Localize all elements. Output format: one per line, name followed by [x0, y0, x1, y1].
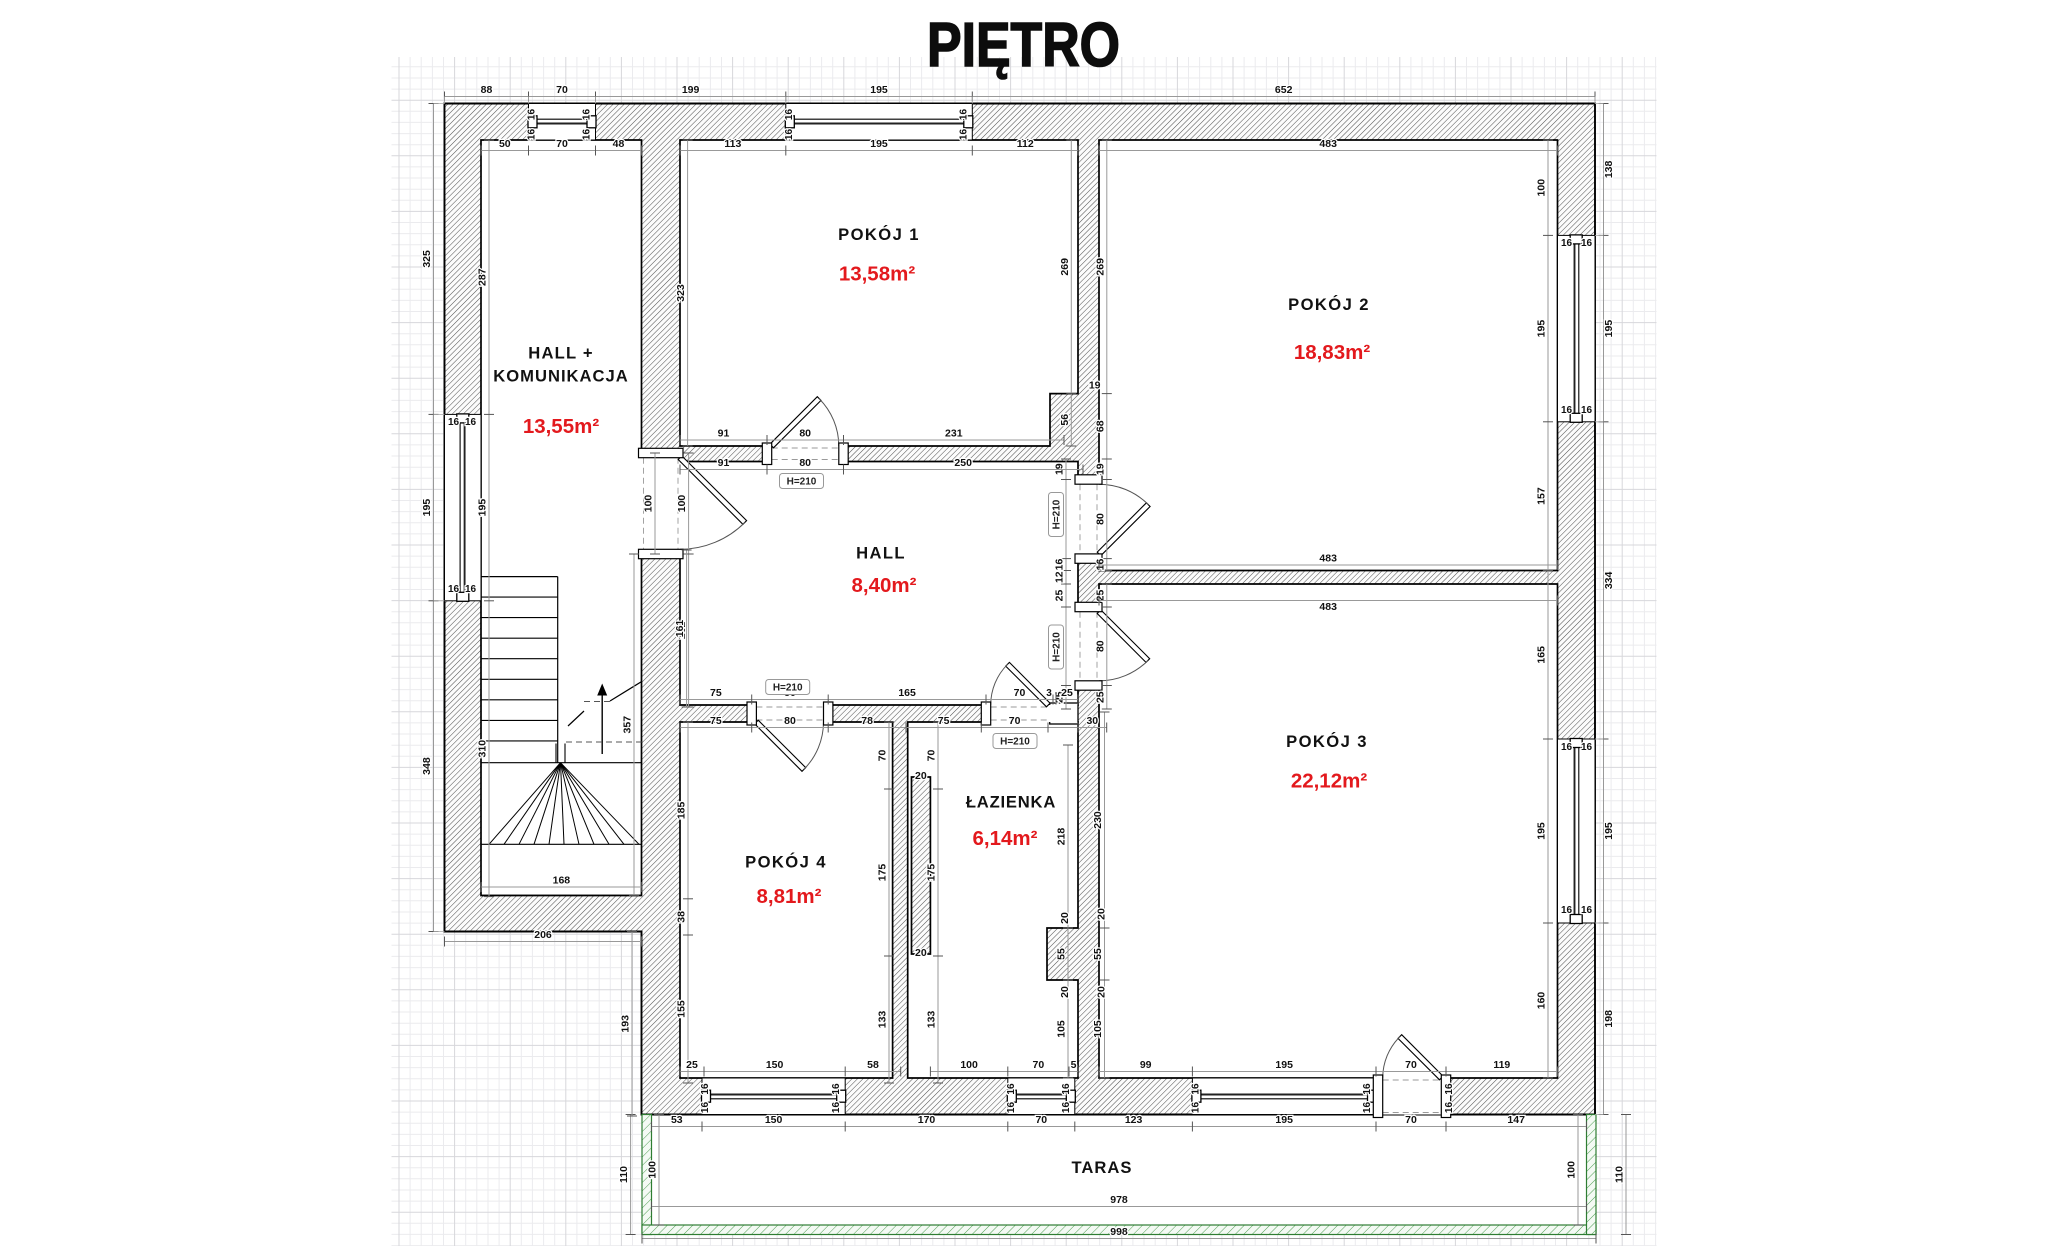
svg-text:16: 16	[582, 109, 593, 121]
svg-text:H=210: H=210	[1052, 632, 1063, 662]
svg-text:269: 269	[1059, 258, 1071, 276]
svg-text:195: 195	[477, 499, 489, 517]
svg-text:133: 133	[926, 1011, 938, 1029]
svg-text:165: 165	[898, 687, 916, 699]
svg-text:68: 68	[1094, 420, 1106, 432]
svg-text:978: 978	[1110, 1194, 1128, 1206]
svg-text:195: 195	[1275, 1114, 1293, 1126]
svg-text:483: 483	[1319, 553, 1337, 565]
svg-text:16: 16	[448, 417, 460, 428]
svg-text:58: 58	[867, 1059, 879, 1071]
svg-text:22,12m²: 22,12m²	[1291, 770, 1368, 793]
svg-text:70: 70	[926, 750, 938, 762]
svg-text:48: 48	[613, 138, 625, 150]
svg-text:16: 16	[700, 1102, 711, 1114]
svg-text:231: 231	[945, 428, 963, 440]
svg-text:POKÓJ 2: POKÓJ 2	[1288, 295, 1370, 314]
svg-text:218: 218	[1056, 828, 1068, 846]
svg-text:175: 175	[926, 864, 938, 882]
svg-text:157: 157	[1536, 487, 1548, 505]
svg-text:16: 16	[1061, 1102, 1072, 1114]
svg-text:325: 325	[421, 250, 433, 268]
svg-text:50: 50	[499, 138, 511, 150]
svg-text:99: 99	[1140, 1059, 1152, 1071]
svg-text:20: 20	[915, 770, 927, 782]
svg-text:25: 25	[1094, 691, 1106, 703]
svg-text:310: 310	[477, 740, 489, 758]
svg-text:105: 105	[1092, 1020, 1104, 1038]
svg-text:206: 206	[534, 929, 552, 941]
svg-text:19: 19	[1094, 463, 1106, 475]
svg-text:16: 16	[1581, 905, 1593, 916]
svg-text:38: 38	[676, 911, 688, 923]
svg-text:16: 16	[527, 109, 538, 121]
svg-text:150: 150	[766, 1059, 784, 1071]
svg-text:20: 20	[915, 947, 927, 959]
svg-text:147: 147	[1507, 1114, 1525, 1126]
svg-text:100: 100	[960, 1059, 978, 1071]
svg-text:16: 16	[784, 129, 795, 141]
svg-text:8,81m²: 8,81m²	[757, 885, 822, 908]
svg-text:18,83m²: 18,83m²	[1294, 341, 1371, 364]
svg-text:80: 80	[1094, 640, 1106, 652]
svg-text:113: 113	[724, 138, 741, 150]
svg-text:13,58m²: 13,58m²	[839, 263, 916, 286]
svg-text:198: 198	[1603, 1010, 1615, 1028]
svg-text:16: 16	[1054, 559, 1066, 571]
svg-text:POKÓJ 1: POKÓJ 1	[838, 225, 920, 244]
svg-text:POKÓJ 4: POKÓJ 4	[745, 853, 827, 872]
svg-text:KOMUNIKACJA: KOMUNIKACJA	[493, 367, 628, 386]
svg-text:16: 16	[1444, 1083, 1455, 1095]
svg-text:16: 16	[465, 584, 477, 595]
svg-text:16: 16	[1006, 1102, 1017, 1114]
svg-text:25: 25	[1094, 590, 1106, 602]
svg-text:3: 3	[1046, 688, 1052, 699]
svg-text:119: 119	[1493, 1059, 1510, 1071]
svg-text:POKÓJ 3: POKÓJ 3	[1286, 732, 1368, 751]
svg-text:16: 16	[1061, 1083, 1072, 1095]
svg-text:155: 155	[676, 1000, 688, 1018]
svg-text:16: 16	[448, 584, 460, 595]
svg-text:70: 70	[556, 84, 568, 96]
svg-text:16: 16	[958, 109, 969, 121]
svg-text:123: 123	[1125, 1114, 1143, 1126]
svg-text:55: 55	[1092, 948, 1104, 960]
svg-text:16: 16	[1190, 1102, 1201, 1114]
svg-text:195: 195	[1603, 822, 1615, 840]
svg-text:16: 16	[527, 129, 538, 141]
svg-text:75: 75	[938, 715, 950, 727]
svg-text:16: 16	[1561, 405, 1573, 416]
svg-text:80: 80	[1094, 513, 1106, 525]
svg-text:5: 5	[1071, 1059, 1077, 1071]
svg-text:483: 483	[1319, 138, 1337, 150]
svg-text:170: 170	[918, 1114, 936, 1126]
svg-text:16: 16	[1444, 1102, 1455, 1114]
svg-text:H=210: H=210	[1052, 499, 1063, 529]
svg-text:16: 16	[1362, 1102, 1373, 1114]
svg-text:16: 16	[465, 417, 477, 428]
svg-text:8,40m²: 8,40m²	[852, 574, 917, 597]
svg-text:20: 20	[1059, 912, 1071, 924]
svg-text:H=210: H=210	[1000, 737, 1030, 748]
svg-text:16: 16	[1190, 1083, 1201, 1095]
svg-text:16: 16	[1581, 405, 1593, 416]
svg-text:110: 110	[618, 1166, 630, 1183]
svg-text:ŁAZIENKA: ŁAZIENKA	[966, 792, 1056, 811]
svg-text:175: 175	[877, 864, 889, 882]
svg-text:195: 195	[870, 84, 888, 96]
svg-text:100: 100	[1566, 1161, 1578, 1179]
svg-text:483: 483	[1319, 601, 1337, 613]
svg-text:998: 998	[1110, 1226, 1128, 1238]
svg-text:652: 652	[1275, 84, 1293, 96]
svg-text:250: 250	[954, 457, 972, 469]
svg-text:16: 16	[1561, 238, 1573, 249]
svg-text:70: 70	[1405, 1059, 1417, 1071]
svg-text:25: 25	[686, 1059, 698, 1071]
svg-text:160: 160	[1536, 992, 1548, 1010]
svg-text:195: 195	[1603, 320, 1615, 338]
svg-text:75: 75	[710, 715, 722, 727]
svg-text:16: 16	[958, 129, 969, 141]
svg-text:88: 88	[481, 84, 493, 96]
svg-text:70: 70	[1405, 1114, 1417, 1126]
svg-text:133: 133	[877, 1011, 889, 1029]
svg-text:161: 161	[674, 620, 686, 638]
svg-text:70: 70	[1009, 715, 1021, 727]
svg-text:13,55m²: 13,55m²	[523, 415, 600, 438]
svg-text:91: 91	[718, 457, 730, 469]
svg-text:357: 357	[622, 716, 634, 734]
svg-text:H=210: H=210	[773, 683, 803, 694]
svg-text:195: 195	[1536, 822, 1548, 840]
svg-text:H=210: H=210	[787, 477, 817, 488]
svg-text:195: 195	[1536, 320, 1548, 338]
svg-text:334: 334	[1603, 571, 1615, 589]
svg-text:75: 75	[710, 687, 722, 699]
svg-text:100: 100	[643, 495, 655, 513]
svg-text:HALL +: HALL +	[528, 344, 593, 363]
svg-text:53: 53	[671, 1114, 683, 1126]
svg-text:16: 16	[582, 129, 593, 141]
svg-text:PIĘTRO: PIĘTRO	[927, 11, 1120, 80]
svg-text:16: 16	[1094, 559, 1106, 571]
svg-text:105: 105	[1056, 1020, 1068, 1038]
svg-text:16: 16	[831, 1102, 842, 1114]
svg-text:150: 150	[765, 1114, 783, 1126]
svg-text:138: 138	[1603, 160, 1615, 178]
svg-text:80: 80	[784, 715, 796, 727]
svg-text:16: 16	[1581, 742, 1593, 753]
svg-text:16: 16	[831, 1083, 842, 1095]
svg-text:165: 165	[1536, 646, 1548, 664]
svg-text:20: 20	[1096, 908, 1108, 920]
svg-text:100: 100	[647, 1161, 659, 1179]
svg-text:25: 25	[1054, 590, 1066, 602]
svg-text:185: 185	[676, 801, 688, 819]
svg-text:16: 16	[1561, 742, 1573, 753]
svg-text:100: 100	[1536, 179, 1548, 197]
svg-text:168: 168	[553, 875, 571, 887]
svg-text:91: 91	[718, 428, 730, 440]
svg-text:195: 195	[1275, 1059, 1293, 1071]
svg-text:55: 55	[1056, 948, 1068, 960]
svg-text:16: 16	[700, 1083, 711, 1095]
svg-text:230: 230	[1092, 811, 1104, 829]
svg-text:TARAS: TARAS	[1072, 1158, 1133, 1177]
svg-text:195: 195	[870, 138, 888, 150]
svg-text:112: 112	[1017, 138, 1034, 150]
svg-text:195: 195	[421, 499, 433, 517]
svg-text:110: 110	[1614, 1166, 1626, 1183]
svg-text:20: 20	[1096, 986, 1108, 998]
svg-text:80: 80	[799, 428, 811, 440]
svg-text:199: 199	[682, 84, 700, 96]
svg-text:12: 12	[1054, 571, 1066, 583]
svg-text:70: 70	[1014, 687, 1026, 699]
svg-text:16: 16	[1561, 905, 1573, 916]
svg-text:70: 70	[1035, 1114, 1047, 1126]
svg-text:78: 78	[861, 715, 873, 727]
svg-text:19: 19	[1089, 380, 1101, 392]
svg-text:100: 100	[676, 495, 688, 513]
svg-text:16: 16	[1362, 1083, 1373, 1095]
svg-text:HALL: HALL	[856, 544, 906, 563]
svg-text:16: 16	[1581, 238, 1593, 249]
svg-text:25: 25	[1061, 687, 1073, 699]
svg-text:193: 193	[620, 1015, 632, 1033]
svg-text:20: 20	[1059, 986, 1071, 998]
svg-text:70: 70	[556, 138, 568, 150]
svg-text:269: 269	[1094, 258, 1106, 276]
svg-text:30: 30	[1086, 715, 1098, 727]
svg-text:70: 70	[877, 750, 889, 762]
svg-text:70: 70	[1033, 1059, 1045, 1071]
svg-text:16: 16	[784, 109, 795, 121]
svg-text:287: 287	[477, 268, 489, 286]
svg-text:348: 348	[421, 757, 433, 775]
svg-text:323: 323	[675, 284, 687, 302]
svg-text:16: 16	[1006, 1083, 1017, 1095]
svg-text:6,14m²: 6,14m²	[973, 827, 1038, 850]
svg-text:56: 56	[1059, 414, 1071, 426]
svg-text:80: 80	[799, 457, 811, 469]
